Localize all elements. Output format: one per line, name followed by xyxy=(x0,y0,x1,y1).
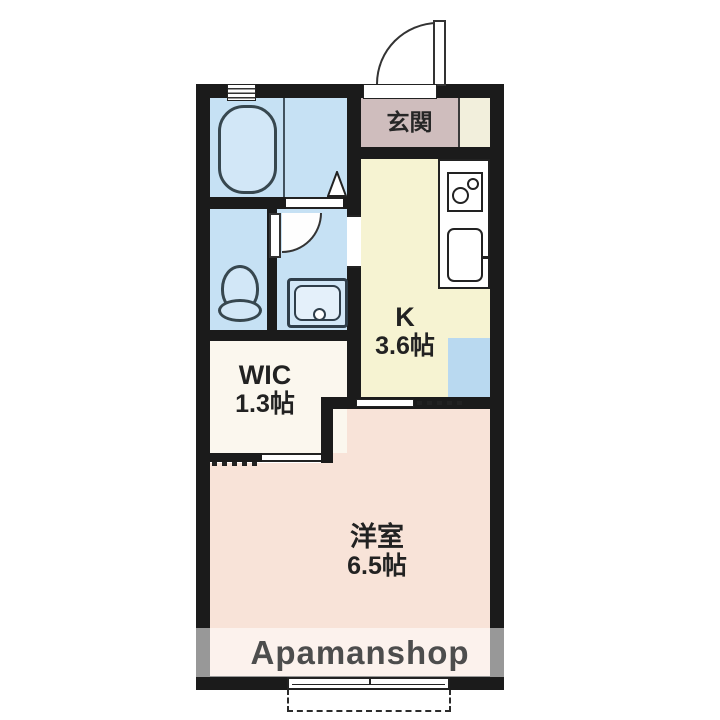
western-room-name: 洋室 xyxy=(317,522,437,552)
wic-label: WIC 1.3帖 xyxy=(215,360,315,418)
wic-door-opening xyxy=(262,453,321,462)
balcony-dashed-outline xyxy=(287,689,451,712)
bathtub-icon xyxy=(218,105,277,194)
burner-icon xyxy=(467,178,479,190)
kitchen-door-hatch xyxy=(417,401,467,405)
kitchen-sink-icon xyxy=(447,228,483,282)
bathroom-window-icon xyxy=(227,84,256,101)
washroom-door-opening xyxy=(347,215,361,268)
wic-size: 1.3帖 xyxy=(215,390,315,418)
stove-burners-icon xyxy=(447,172,483,212)
sliding-window-icon xyxy=(287,677,450,690)
watermark-band: Apamanshop xyxy=(0,628,720,677)
watermark-text: Apamanshop xyxy=(250,634,469,672)
wic-door-hatch xyxy=(212,462,260,466)
door-swing-arc-icon xyxy=(376,22,438,84)
western-room-label: 洋室 6.5帖 xyxy=(317,522,437,580)
washbasin-icon xyxy=(287,278,348,328)
toilet-base-icon xyxy=(218,299,262,322)
wall xyxy=(321,397,333,463)
burner-icon xyxy=(452,187,469,204)
entrance-label: 玄関 xyxy=(387,110,433,136)
entrance-room: 玄関 xyxy=(361,98,458,147)
folding-door-triangle-icon xyxy=(327,171,347,197)
wall xyxy=(347,147,490,159)
western-room-size: 6.5帖 xyxy=(317,552,437,580)
faucet-icon xyxy=(481,256,490,259)
kitchen-name: K xyxy=(360,302,450,332)
kitchen-size: 3.6帖 xyxy=(360,332,450,360)
entrance-door-opening xyxy=(363,84,437,99)
window-center-mark xyxy=(369,679,372,684)
wall xyxy=(210,330,361,341)
washroom-door-leaf-icon xyxy=(269,213,281,258)
wall xyxy=(210,197,286,209)
entrance-door-leaf-icon xyxy=(433,20,446,86)
kitchen-label: K 3.6帖 xyxy=(360,302,450,360)
apartment-outline: 玄関 xyxy=(196,84,504,690)
wic-name: WIC xyxy=(215,360,315,390)
washer-space xyxy=(448,338,490,397)
floorplan-image: 玄関 xyxy=(0,0,720,720)
kitchen-door-opening xyxy=(356,399,414,407)
wall xyxy=(210,453,262,462)
washbasin-drain-icon xyxy=(313,308,326,321)
entrance-storage xyxy=(458,98,490,147)
bath-door-opening xyxy=(286,197,343,209)
